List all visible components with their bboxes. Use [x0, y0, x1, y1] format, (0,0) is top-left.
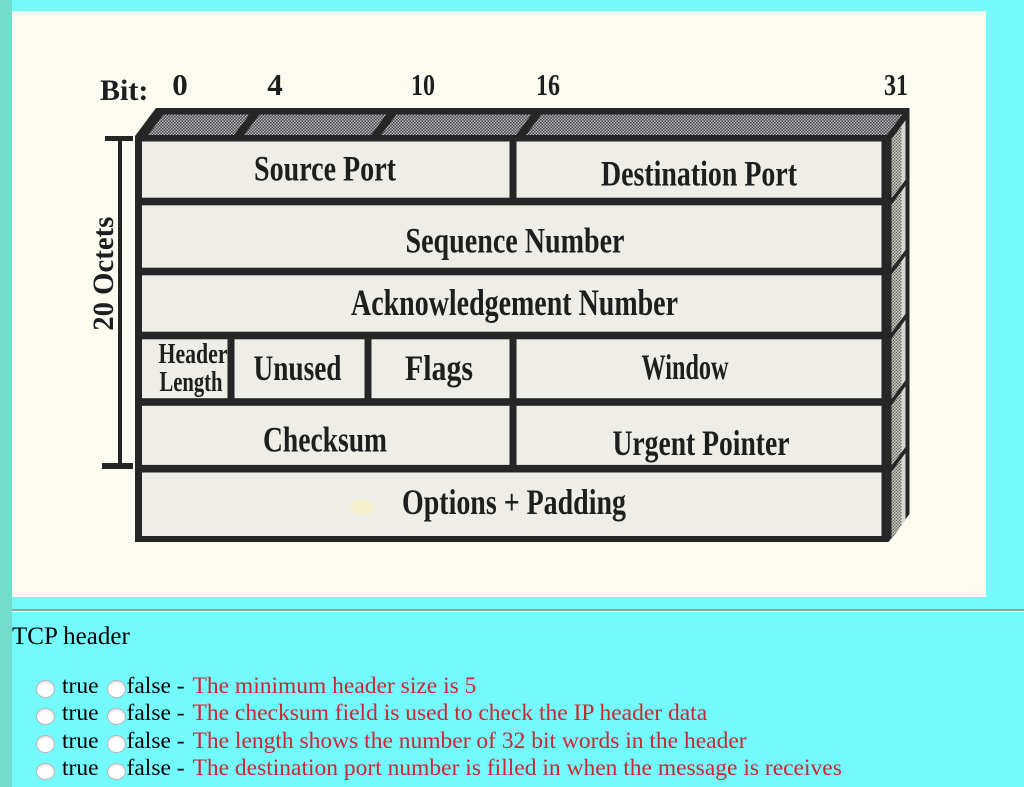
svg-text:Flags: Flags [405, 348, 473, 388]
svg-text:Header: Header [159, 339, 228, 370]
svg-text:Urgent Pointer: Urgent Pointer [613, 423, 790, 463]
svg-text:Sequence Number: Sequence Number [406, 221, 625, 261]
svg-text:20 Octets: 20 Octets [87, 217, 120, 331]
svg-text:Destination Port: Destination Port [601, 154, 797, 194]
svg-text:Window: Window [642, 347, 729, 387]
svg-text:Acknowledgement Number: Acknowledgement Number [351, 283, 678, 324]
svg-text:Source Port: Source Port [254, 149, 396, 189]
svg-text:Checksum: Checksum [263, 420, 387, 460]
svg-text:10: 10 [411, 67, 435, 102]
svg-text:16: 16 [536, 67, 560, 102]
svg-text:Bit:: Bit: [100, 74, 148, 107]
svg-text:Options + Padding: Options + Padding [402, 482, 626, 522]
svg-text:4: 4 [267, 67, 283, 102]
svg-text:Length: Length [160, 367, 223, 398]
svg-text:Unused: Unused [254, 348, 342, 388]
svg-text:0: 0 [172, 67, 188, 102]
svg-text:31: 31 [884, 67, 908, 102]
